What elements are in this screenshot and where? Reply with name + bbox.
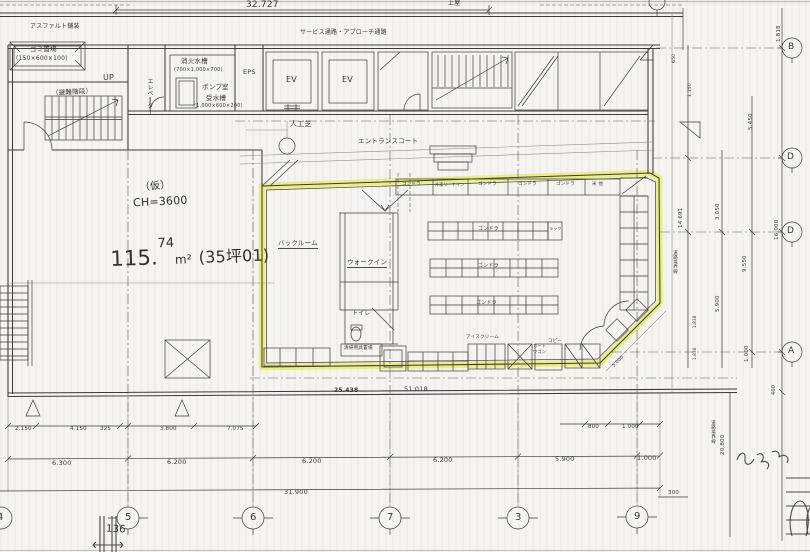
grid-bubble-7: 7: [387, 513, 394, 523]
asphalt-note: アスファルト舗装: [30, 24, 80, 30]
toilet-label: トイレ: [352, 311, 371, 317]
wagon-label: ワゴン: [533, 350, 546, 354]
road-boundary-2: 道路境界線: [710, 420, 715, 444]
dim-5450: 5.450: [749, 113, 755, 130]
handwritten-marks: [93, 451, 810, 552]
eps-label: EPS: [243, 69, 256, 76]
grid-bubble-B: B: [788, 43, 794, 52]
water-tank-label: 受水槽: [206, 95, 226, 102]
dim-4150: 4.150: [70, 427, 87, 433]
dim-9550: 9.550: [743, 255, 749, 272]
dim-800: 800: [588, 425, 599, 431]
gondola2-label: ゴンドラ: [478, 264, 499, 269]
wall-fixture-6: 米 他: [592, 183, 603, 188]
dim-3800: 3.800: [160, 427, 177, 433]
gondola1-label: ゴンドラ: [478, 227, 499, 232]
grid-bubble-4: 4: [0, 513, 4, 523]
dim-5900r: 5.900: [716, 295, 722, 312]
gondola3-label: ゴンドラ: [476, 301, 497, 306]
wall-fixture-4: ゴンドラ: [518, 183, 537, 188]
dim-6200b: 6.200: [302, 458, 322, 465]
store-walls: [262, 173, 660, 367]
entrance-court-label: エントランスコート: [358, 138, 418, 145]
benchmark-2: 51.018: [404, 386, 428, 393]
rack-label: ラック: [549, 227, 562, 231]
dim-total-bottom: 31.900: [284, 489, 308, 496]
backroom-label: バックルーム: [278, 240, 318, 249]
water-tank-size: (1,000×600×200): [194, 104, 243, 109]
cleaning-label: 清掃用具置場: [344, 347, 373, 352]
dim-3050: 3.050: [716, 203, 722, 220]
grid-bubble-D1: D: [787, 153, 794, 162]
dim-1000r: 1.000: [745, 345, 751, 362]
grid-bubble-9: 9: [634, 512, 641, 522]
dim-6300: 6.300: [52, 460, 72, 467]
road-boundary-1: 道路境界線: [672, 250, 677, 274]
bin-room-label: ゴミ置場: [30, 46, 57, 53]
stair-note: （避難階段）: [52, 88, 92, 97]
dim-2150: 2.150: [15, 427, 32, 433]
ceiling-height-note: CH=3600: [133, 195, 188, 209]
grid-bubble-6: 6: [250, 513, 257, 523]
dim-300: 300: [668, 491, 679, 497]
area-tsubo: (35坪01): [198, 245, 269, 266]
benchmark-1: 25.438: [334, 388, 358, 394]
cart-label: カート: [533, 344, 546, 348]
dim-1836: 1.836: [693, 348, 697, 360]
dim-1000b: 1.000: [622, 425, 639, 431]
elevator-label: エレベーター: [146, 78, 152, 115]
store-fixtures: [264, 173, 666, 371]
wall-fixture-5: ゴンドラ: [556, 183, 575, 188]
dim-1150: 1.150: [689, 83, 694, 97]
dim-5900b: 5.900: [555, 456, 575, 463]
dim-325: 325: [100, 427, 111, 433]
floor-plan-scan: 32.727 上屋 サービス通路・アプローチ通路 アスファルト舗装 ゴミ置場 (…: [0, 0, 810, 552]
dim-650: 650: [673, 54, 678, 63]
dim-1838: 1.838: [693, 316, 697, 328]
dim-400: 400: [772, 385, 777, 395]
up-label: UP: [103, 74, 114, 82]
copy-label: コピー: [548, 340, 562, 345]
fire-tank-label: 消火水槽: [181, 58, 208, 65]
wall-fixture-2: 冷凍リーチイン: [435, 183, 464, 187]
fire-tank-size: (700×1,000×700): [174, 68, 223, 73]
grid-bubble-A: A: [788, 347, 794, 356]
grid-bubble-D2: D: [787, 227, 794, 236]
ev2-label: EV: [342, 76, 353, 84]
turf-label: 人工芝: [290, 121, 312, 128]
dim-total-top: 32.727: [246, 1, 279, 10]
dim-7075: 7.075: [227, 427, 244, 433]
dim-6200c: 6.200: [433, 457, 453, 464]
wall-fixture-1: ゴンドラ: [402, 183, 421, 188]
dim-20800: 20.800: [721, 435, 727, 455]
pump-room-label: ポンプ室: [202, 84, 229, 91]
ice-cream-label: アイスクリーム: [466, 336, 499, 341]
dim-1000c: 1.000: [637, 455, 657, 462]
dim-14691: 14.691: [679, 208, 685, 228]
upper-rooms: [10, 42, 653, 150]
dim-1818: 1.818: [777, 25, 783, 42]
bin-size-label: (150×600×100): [16, 56, 68, 62]
handwritten-136: 136: [106, 524, 126, 535]
dim-6200a: 6.200: [167, 459, 187, 466]
bottom-dimensions: [0, 392, 688, 506]
area-decimal: 74: [157, 236, 174, 252]
service-corridor-note: サービス通路・アプローチ通路: [300, 30, 387, 36]
area-integer: 115.: [110, 245, 158, 271]
canopy-label: 上屋: [448, 1, 460, 7]
wall-fixture-3: ゴンドラ: [478, 183, 497, 188]
ev1-label: EV: [286, 76, 297, 84]
dim-16000: 16.000: [775, 220, 781, 240]
walkin-label: ウォークイン: [347, 259, 387, 268]
grid-bubble-5: 5: [125, 513, 132, 523]
grid-bubble-8: 3: [515, 513, 522, 523]
store-highlight: [262, 173, 660, 367]
area-unit: m²: [175, 252, 192, 267]
